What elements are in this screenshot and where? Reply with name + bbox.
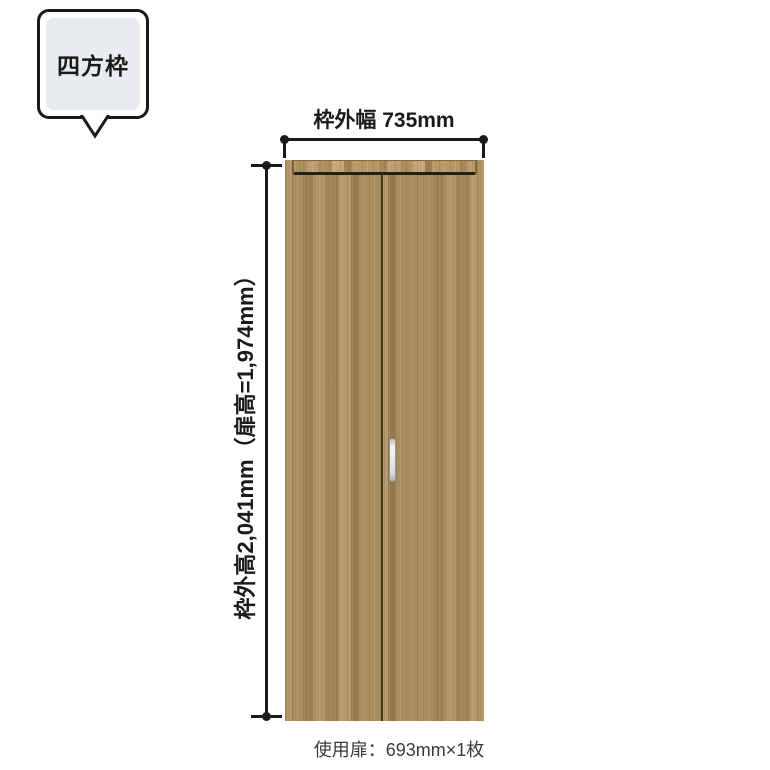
width-dimension-tick-left	[283, 140, 286, 158]
height-dimension-tick-top	[251, 164, 282, 167]
callout-tail-icon	[77, 115, 113, 139]
callout-inner-panel: 四方枠	[46, 18, 140, 110]
height-dimension-tick-bottom	[251, 715, 282, 718]
width-dimension-label: 枠外幅 735mm	[284, 104, 484, 134]
callout-label: 四方枠	[57, 47, 129, 81]
width-dimension-line	[284, 138, 484, 141]
width-dimension-tick-right	[482, 140, 485, 158]
door-center-gap-line	[381, 174, 383, 721]
door-handle	[389, 438, 396, 482]
height-dimension-label: 枠外高2,041mm（扉高=1,974mm）	[231, 162, 261, 722]
door-figure	[285, 160, 484, 721]
door-panel-right	[383, 175, 477, 721]
caption-text: 使用扉：693mm×1枚	[247, 736, 551, 762]
callout-bubble: 四方枠	[37, 9, 149, 119]
height-dimension-line	[265, 166, 268, 717]
door-panel-left	[292, 175, 381, 721]
product-dimension-diagram: 四方枠 枠外幅 735mm 枠外高2,041mm（扉高=1,974mm） 使用扉…	[0, 0, 770, 770]
